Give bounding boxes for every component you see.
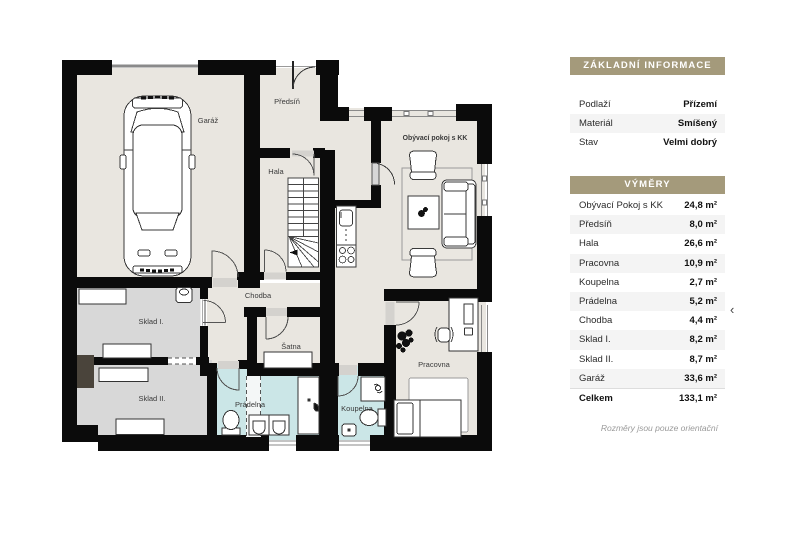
svg-text:Prádelna: Prádelna — [235, 400, 266, 409]
svg-text:Garáž: Garáž — [198, 116, 219, 125]
svg-text:Pracovna: Pracovna — [418, 360, 451, 369]
svg-text:Sklad I.: Sklad I. — [138, 317, 163, 326]
svg-text:Chodba: Chodba — [245, 291, 272, 300]
svg-text:Koupelna: Koupelna — [341, 404, 374, 413]
svg-text:Předsíň: Předsíň — [274, 97, 300, 106]
svg-text:Sklad II.: Sklad II. — [138, 394, 165, 403]
svg-text:Hala: Hala — [268, 167, 284, 176]
svg-text:Šatna: Šatna — [281, 342, 301, 351]
svg-text:Obývací pokoj s KK: Obývací pokoj s KK — [403, 135, 468, 142]
